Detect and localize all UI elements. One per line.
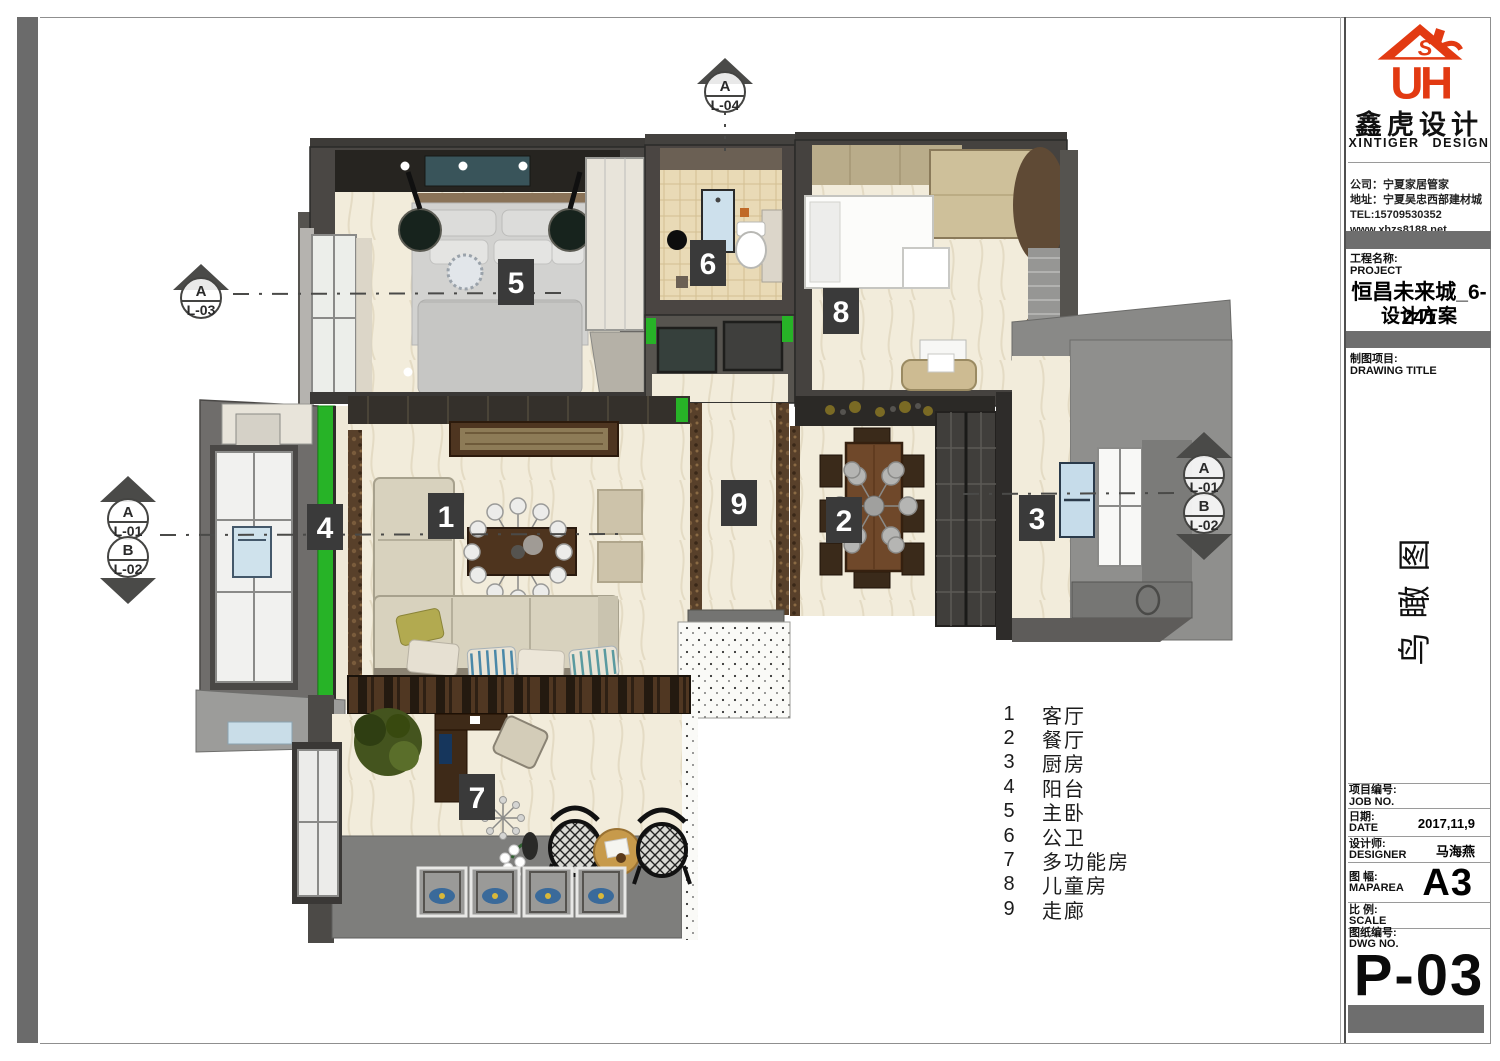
maparea-value: A3 bbox=[1422, 862, 1489, 905]
svg-text:5: 5 bbox=[508, 267, 525, 300]
svg-text:L-02: L-02 bbox=[1190, 517, 1219, 533]
floorplan-rendering: A L-04 A L-03 A L-01 B L-02 A L- bbox=[0, 0, 1500, 1061]
drawing-title-label-cn: 制图项目: bbox=[1350, 353, 1398, 365]
company-logo: S UH bbox=[1370, 24, 1470, 102]
company-line: 地址：宁夏吴忠西部建材城 bbox=[1350, 193, 1490, 208]
room-legend: 1 客厅 2 餐厅 3 厨房 4 阳台 5 主卧 6 公卫 7 多功能房 8 儿… bbox=[998, 702, 1130, 922]
svg-text:UH: UH bbox=[1390, 58, 1450, 102]
svg-text:A: A bbox=[123, 504, 134, 521]
drawing-title-label-en: DRAWING TITLE bbox=[1350, 365, 1437, 377]
project-name-line2: 设计方案 bbox=[1344, 301, 1494, 328]
room-dining-room bbox=[790, 412, 996, 626]
titleblock-gray-bar bbox=[1346, 231, 1491, 249]
view-title-vertical: 鸟瞰图 bbox=[1388, 510, 1428, 680]
drawing-sheet: A L-04 A L-03 A L-01 B L-02 A L- bbox=[0, 0, 1500, 1061]
legend-item: 6 公卫 bbox=[998, 824, 1130, 848]
svg-text:2: 2 bbox=[836, 505, 853, 538]
legend-item: 7 多功能房 bbox=[998, 848, 1130, 872]
svg-text:L-04: L-04 bbox=[711, 97, 740, 113]
room-master-bedroom bbox=[298, 138, 650, 412]
svg-text:B: B bbox=[1199, 498, 1210, 515]
entry-vestibule bbox=[645, 315, 795, 403]
room-living-room bbox=[310, 392, 690, 709]
svg-text:1: 1 bbox=[438, 501, 455, 534]
section-marker-left-l03: A L-03 bbox=[173, 264, 229, 318]
project-label-cn: 工程名称: bbox=[1350, 253, 1398, 265]
svg-text:4: 4 bbox=[317, 512, 334, 545]
company-line: 公司：宁夏家居管家 bbox=[1350, 178, 1490, 193]
dwg-no-value: P-03 bbox=[1346, 942, 1492, 1009]
svg-text:B: B bbox=[123, 542, 134, 559]
svg-text:A: A bbox=[1199, 460, 1210, 477]
titleblock-gray-bar bbox=[1348, 1005, 1484, 1033]
field-date: 日期: DATE 2017,11,9 bbox=[1348, 808, 1490, 836]
titleblock-gray-bar bbox=[1346, 331, 1491, 348]
svg-text:9: 9 bbox=[731, 488, 748, 521]
legend-item: 2 餐厅 bbox=[998, 726, 1130, 750]
room-corridor bbox=[678, 403, 790, 718]
wood-lattice-band bbox=[348, 676, 690, 714]
company-info: 公司：宁夏家居管家 地址：宁夏吴忠西部建材城 TEL:15709530352 w… bbox=[1350, 178, 1490, 238]
legend-item: 1 客厅 bbox=[998, 702, 1130, 726]
field-scale: 比 例: SCALE bbox=[1348, 902, 1490, 928]
company-line: TEL:15709530352 bbox=[1350, 208, 1490, 223]
date-value: 2017,11,9 bbox=[1418, 816, 1489, 831]
titleblock-fields: 项目编号: JOB NO. 日期: DATE 2017,11,9 设计师: DE… bbox=[1348, 783, 1490, 948]
brand-name-en: XINTIGER DESIGN bbox=[1348, 136, 1490, 150]
section-marker-west-pair: A L-01 B L-02 bbox=[100, 476, 156, 604]
legend-item: 4 阳台 bbox=[998, 775, 1130, 799]
designer-value: 马海燕 bbox=[1436, 841, 1489, 860]
svg-text:3: 3 bbox=[1029, 503, 1046, 536]
legend-item: 8 儿童房 bbox=[998, 873, 1130, 897]
field-designer: 设计师: DESIGNER 马海燕 bbox=[1348, 836, 1490, 862]
legend-item: 9 走廊 bbox=[998, 897, 1130, 921]
room-bathroom bbox=[645, 134, 795, 317]
svg-text:8: 8 bbox=[833, 296, 850, 329]
xintiger-logo-icon: S UH bbox=[1370, 24, 1470, 102]
svg-text:7: 7 bbox=[469, 782, 486, 815]
svg-text:L-03: L-03 bbox=[187, 302, 216, 318]
svg-text:A: A bbox=[196, 283, 207, 300]
svg-text:S: S bbox=[1418, 35, 1433, 60]
section-marker-top-l04: A L-04 bbox=[697, 58, 753, 113]
legend-item: 3 厨房 bbox=[998, 751, 1130, 775]
field-maparea: 图 幅: MAPAREA A3 bbox=[1348, 862, 1490, 902]
titleblock-divider bbox=[1348, 162, 1491, 163]
svg-text:6: 6 bbox=[700, 248, 717, 281]
svg-text:L-02: L-02 bbox=[114, 561, 143, 577]
legend-item: 5 主卧 bbox=[998, 800, 1130, 824]
svg-text:A: A bbox=[720, 78, 731, 95]
field-job-no: 项目编号: JOB NO. bbox=[1348, 783, 1490, 808]
